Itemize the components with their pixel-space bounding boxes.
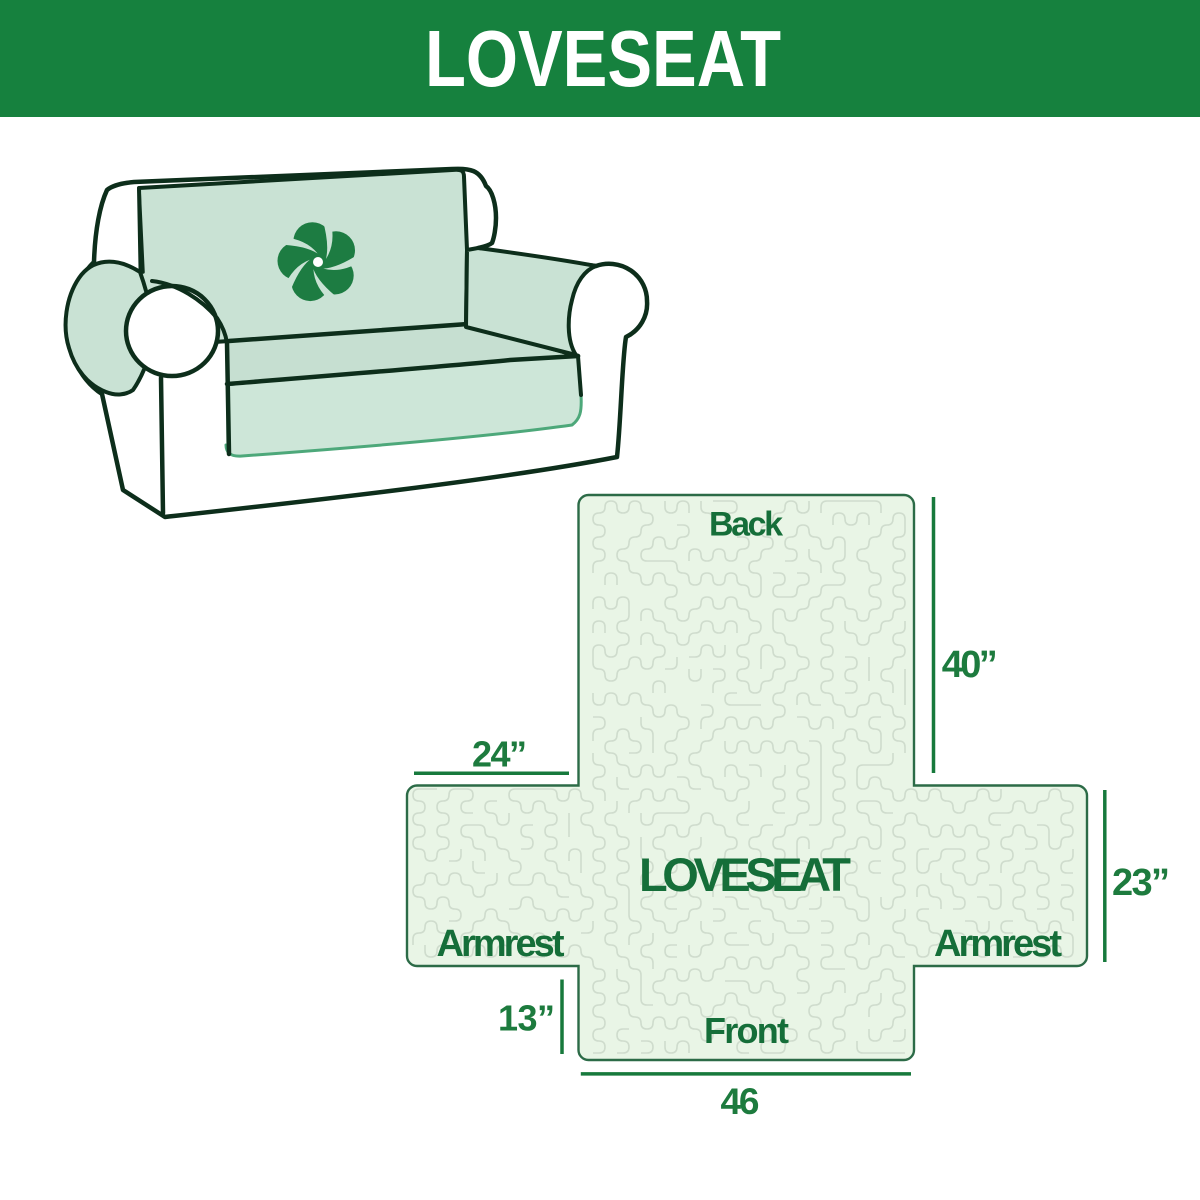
svg-text:Armrest: Armrest <box>437 923 565 965</box>
svg-text:40”: 40” <box>942 644 998 686</box>
svg-text:24”: 24” <box>472 734 527 775</box>
svg-text:46: 46 <box>721 1081 760 1122</box>
svg-text:13”: 13” <box>498 998 555 1039</box>
svg-text:Armrest: Armrest <box>934 923 1062 965</box>
svg-text:LOVESEAT: LOVESEAT <box>425 14 781 103</box>
svg-text:Back: Back <box>709 506 783 544</box>
svg-text:Front: Front <box>704 1010 789 1051</box>
svg-text:LOVESEAT: LOVESEAT <box>639 848 851 901</box>
svg-text:23”: 23” <box>1112 862 1170 904</box>
